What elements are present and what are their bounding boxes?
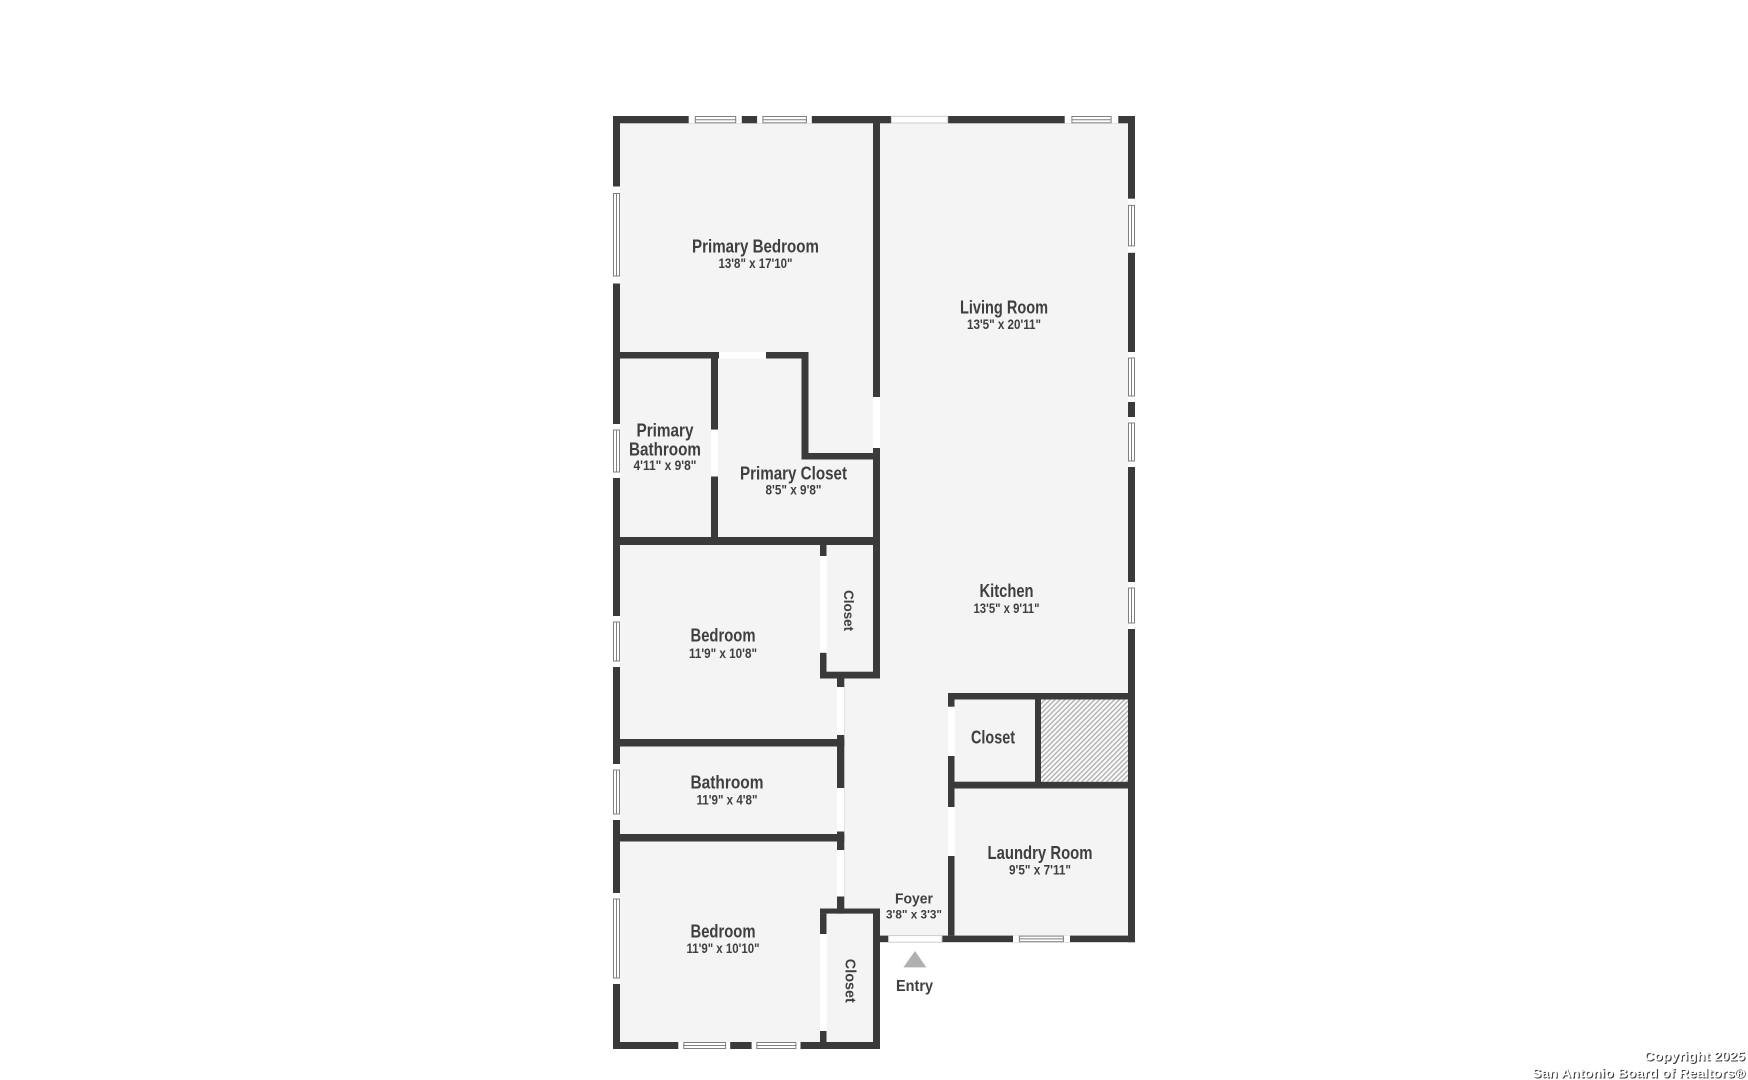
svg-text:Primary Bedroom: Primary Bedroom [692, 236, 819, 257]
svg-text:11'9" x 10'10": 11'9" x 10'10" [687, 940, 760, 956]
svg-text:11'9" x 4'8": 11'9" x 4'8" [697, 792, 758, 808]
svg-text:Primary Closet: Primary Closet [740, 463, 847, 484]
svg-text:8'5" x 9'8": 8'5" x 9'8" [766, 482, 822, 498]
svg-text:Copyright 2025: Copyright 2025 [1644, 1049, 1745, 1064]
svg-text:Closet: Closet [841, 959, 857, 1003]
svg-text:Bathroom: Bathroom [691, 772, 764, 793]
svg-text:4'11" x 9'8": 4'11" x 9'8" [634, 457, 697, 473]
svg-text:3'8" x 3'3": 3'8" x 3'3" [886, 910, 942, 922]
svg-text:Laundry Room: Laundry Room [988, 842, 1093, 863]
svg-text:Primary: Primary [637, 420, 695, 441]
svg-text:Bedroom: Bedroom [691, 921, 756, 942]
svg-text:13'5" x 9'11": 13'5" x 9'11" [974, 600, 1040, 616]
svg-text:Closet: Closet [971, 728, 1015, 748]
svg-text:13'5" x 20'11": 13'5" x 20'11" [967, 316, 1041, 332]
svg-text:Closet: Closet [841, 590, 857, 631]
svg-text:13'8" x 17'10": 13'8" x 17'10" [719, 255, 793, 271]
svg-text:Kitchen: Kitchen [980, 580, 1034, 601]
svg-text:San Antonio Board of Realtors®: San Antonio Board of Realtors® [1532, 1065, 1745, 1080]
svg-text:11'9" x 10'8": 11'9" x 10'8" [689, 645, 757, 661]
svg-text:Living Room: Living Room [960, 297, 1048, 318]
svg-text:Entry: Entry [896, 978, 933, 995]
svg-text:Foyer: Foyer [895, 891, 933, 908]
svg-text:Bedroom: Bedroom [691, 625, 756, 646]
svg-text:9'5" x 7'11": 9'5" x 7'11" [1009, 861, 1071, 877]
